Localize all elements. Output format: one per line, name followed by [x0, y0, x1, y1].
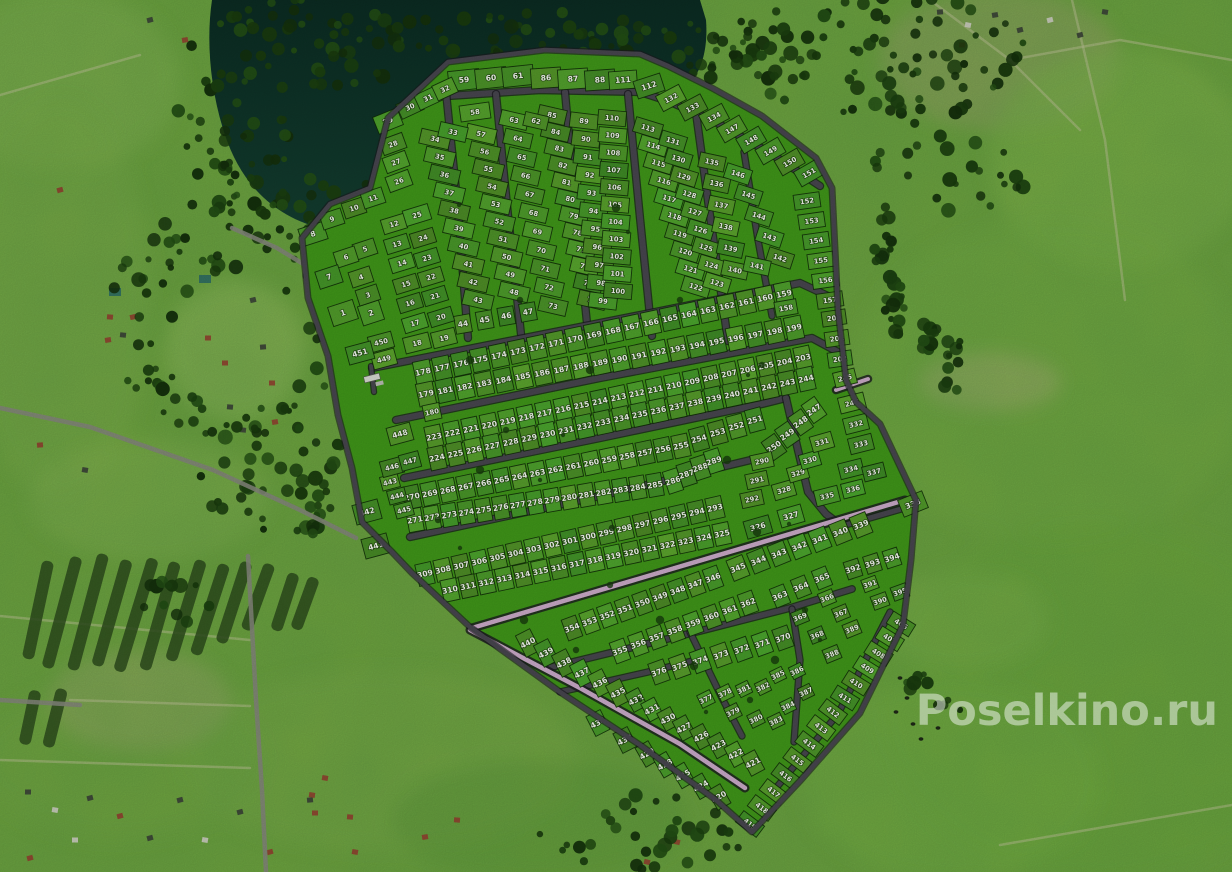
map-canvas: 3435363738394041424357565554535251504948… — [0, 0, 1232, 872]
map-screenshot: 3435363738394041424357565554535251504948… — [0, 0, 1232, 872]
watermark: Poselkino.ru — [916, 686, 1218, 736]
photo-grain — [0, 0, 1232, 872]
